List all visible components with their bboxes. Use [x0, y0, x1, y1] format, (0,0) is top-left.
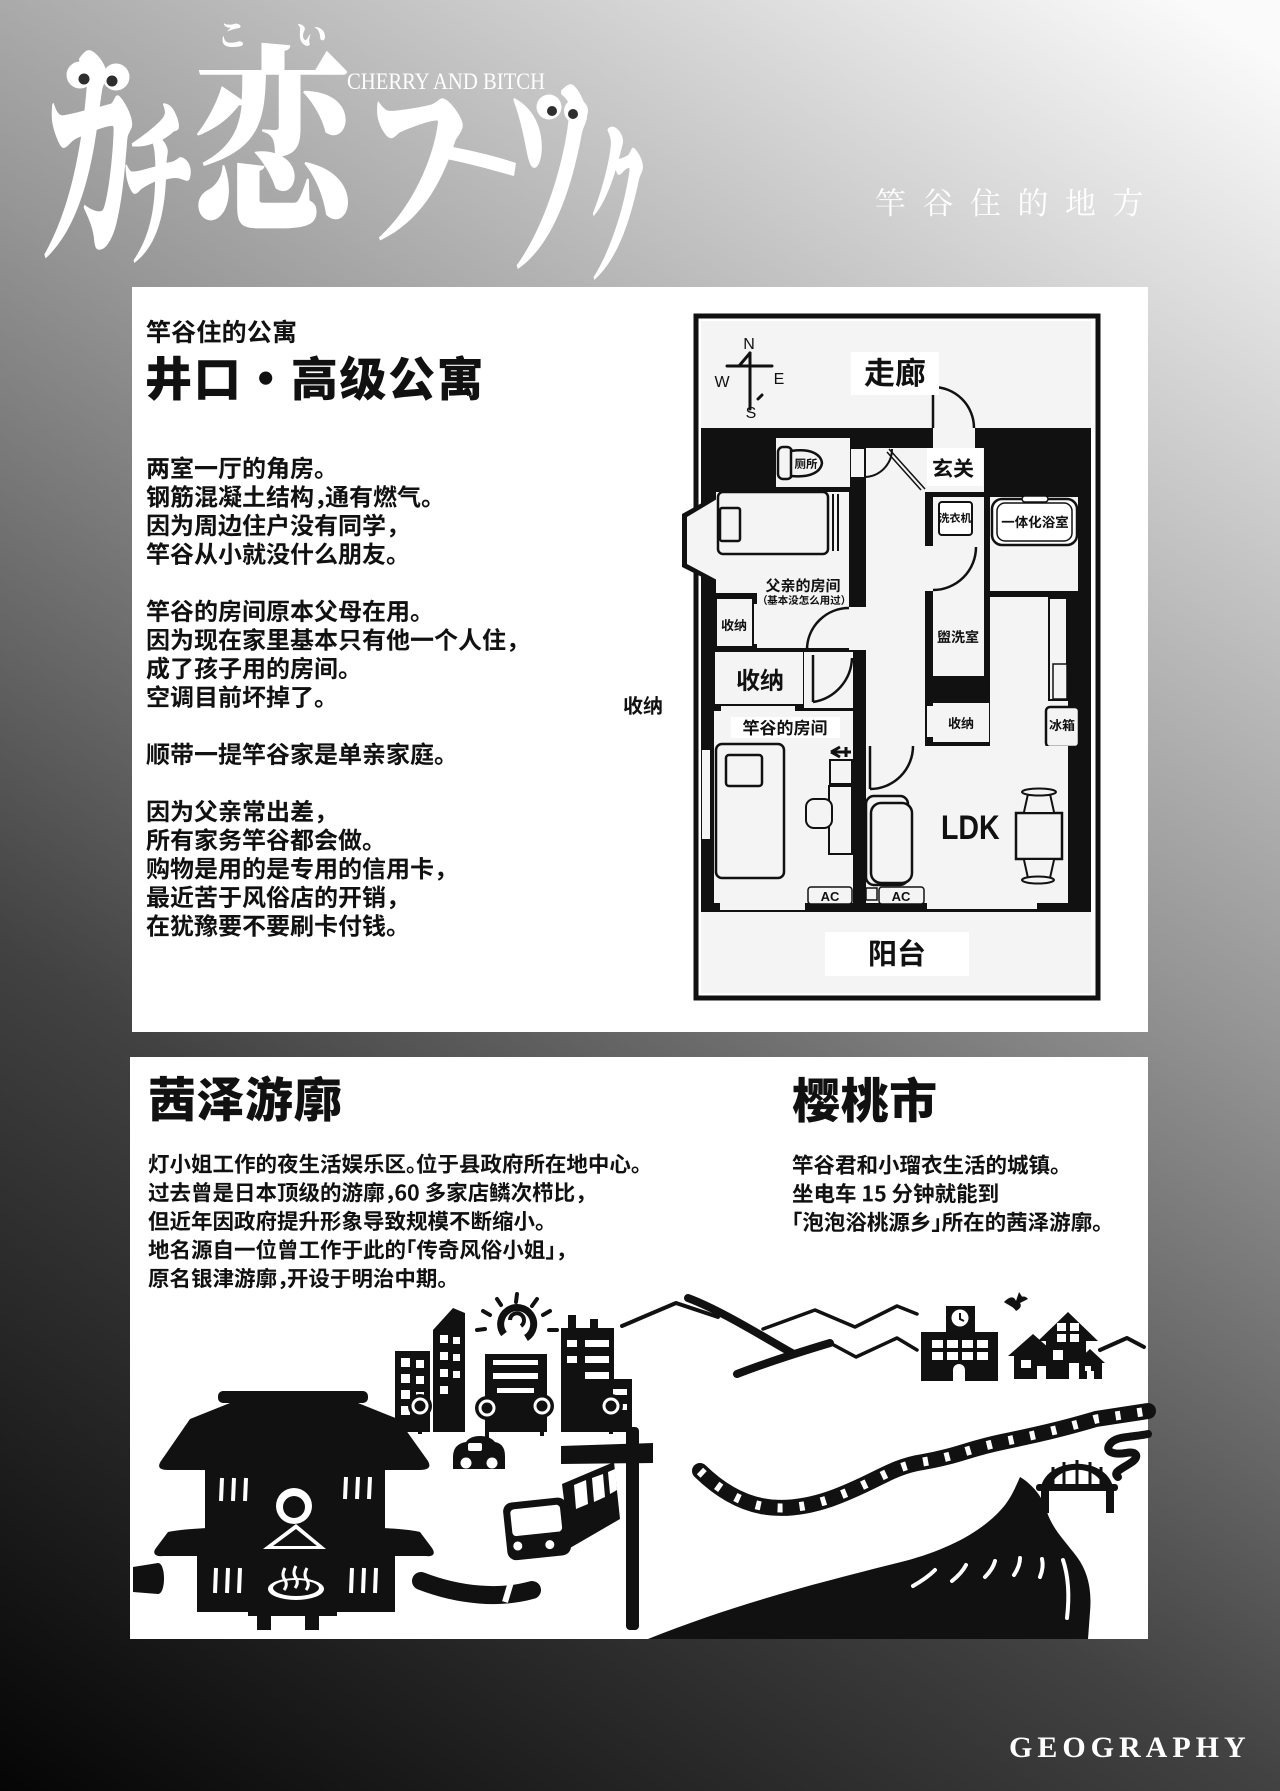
svg-text:CHERRY AND BITCH: CHERRY AND BITCH	[347, 69, 545, 94]
svg-text:GEOGRAPHY: GEOGRAPHY	[1009, 1731, 1251, 1764]
svg-text:S: S	[746, 405, 757, 422]
svg-text:N: N	[743, 336, 755, 353]
svg-text:AC: AC	[892, 889, 911, 904]
svg-text:AC: AC	[821, 889, 840, 904]
svg-text:LDK: LDK	[941, 809, 1000, 847]
svg-text:W: W	[714, 374, 730, 391]
svg-text:E: E	[774, 371, 785, 388]
